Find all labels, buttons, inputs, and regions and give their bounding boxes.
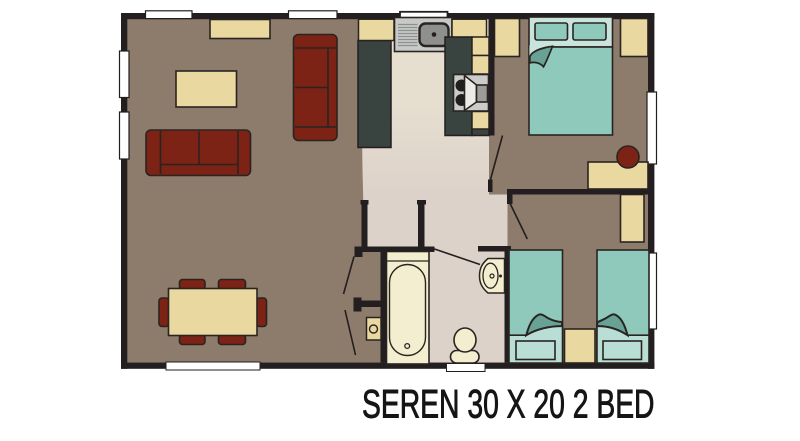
svg-text:SEREN 30 X 20 2 BED: SEREN 30 X 20 2 BED: [362, 383, 655, 427]
